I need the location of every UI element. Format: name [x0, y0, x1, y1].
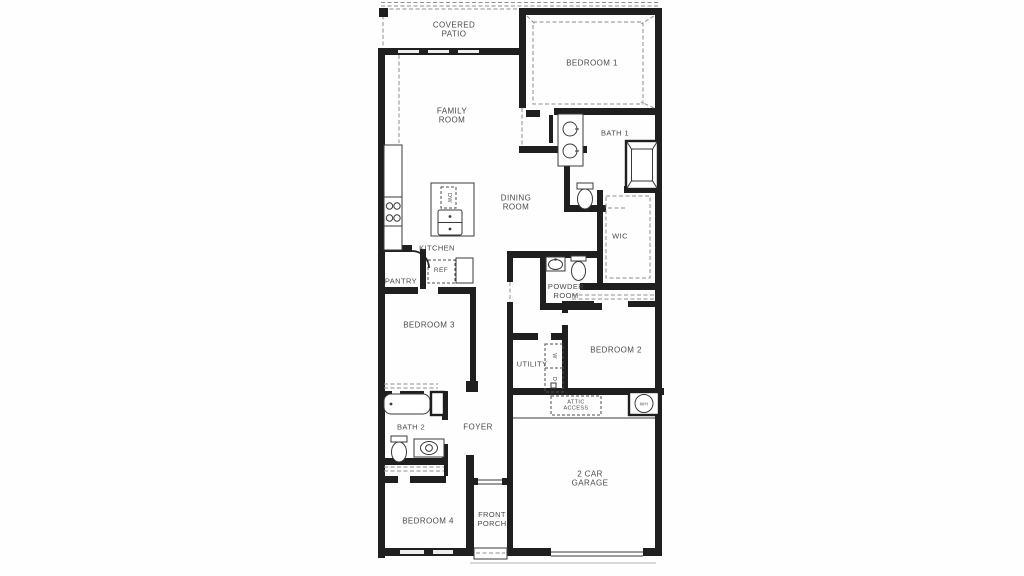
kitchen-island	[431, 183, 474, 236]
room-label-bedroom-4: BEDROOM 4	[402, 516, 454, 525]
room-label-washer: W	[551, 353, 557, 359]
bath2-toilet	[391, 436, 407, 462]
room-label-utility: UTILITY	[517, 361, 548, 370]
bath1-toilet	[577, 183, 593, 209]
front-door	[478, 480, 502, 484]
room-label-covered-patio: COVERED PATIO	[433, 21, 475, 40]
porch-step	[474, 548, 507, 559]
room-label-pantry: PANTRY	[385, 278, 417, 287]
bath1-tub	[626, 141, 658, 189]
kitchen-counter-cooktop	[384, 145, 402, 250]
garage-door	[551, 552, 643, 556]
bath2-sink	[414, 439, 444, 457]
room-label-ref: REF	[434, 267, 448, 275]
room-label-attic-access: ATTIC ACCESS	[563, 400, 588, 413]
room-label-bath-1: BATH 1	[601, 130, 629, 139]
powder-sink	[546, 257, 565, 271]
room-label-family-room: FAMILY ROOM	[437, 107, 467, 126]
kitchen-cabinet	[456, 258, 473, 283]
room-label-bedroom-2: BEDROOM 2	[590, 345, 642, 354]
room-label-foyer: FOYER	[463, 422, 493, 431]
floor-plan: COVERED PATIOBEDROOM 1FAMILY ROOMBATH 1D…	[0, 0, 1024, 576]
room-label-powder-room: POWDER ROOM	[548, 283, 584, 301]
bath1-vanity	[558, 114, 583, 166]
room-label-wic: WIC	[612, 233, 628, 242]
room-label-front-porch: FRONT PORCH	[477, 511, 506, 529]
floor-plan-drawing	[0, 0, 1024, 576]
washer-dryer	[545, 344, 563, 392]
room-label-wh: WH	[640, 401, 648, 406]
room-label-bedroom-3: BEDROOM 3	[403, 320, 455, 329]
room-label-dishwasher: DW	[445, 193, 451, 203]
bath2-linen	[431, 392, 444, 415]
powder-toilet	[571, 256, 586, 281]
room-label-kitchen: KITCHEN	[419, 245, 455, 254]
room-label-dryer: D	[551, 377, 557, 381]
interior-walls	[378, 15, 664, 556]
room-label-bedroom-1: BEDROOM 1	[566, 58, 618, 67]
room-label-bath-2: BATH 2	[397, 424, 425, 433]
room-label-dining-room: DINING ROOM	[501, 194, 531, 213]
room-label-garage: 2 CAR GARAGE	[572, 470, 609, 489]
bath2-tub	[384, 394, 430, 414]
